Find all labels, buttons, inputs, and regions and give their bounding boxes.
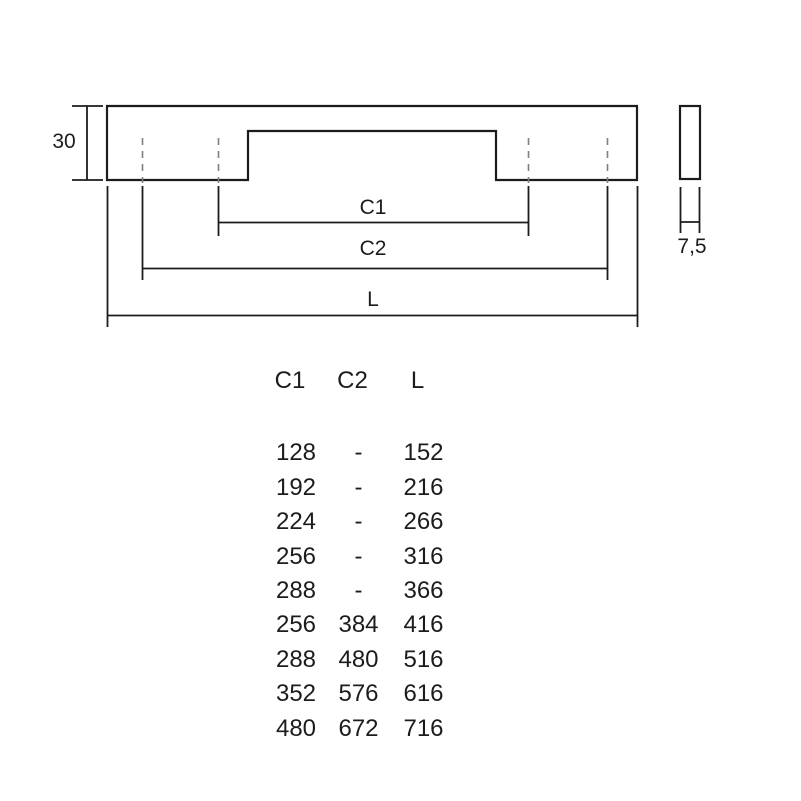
table-cell-c1: 192: [256, 471, 336, 505]
table-cell-c2: -: [336, 436, 381, 470]
table-cell-c2: -: [336, 574, 381, 608]
table-cell-c2: 384: [336, 608, 381, 642]
table-cell-l: 216: [381, 471, 466, 505]
table-cell-c1: 288: [256, 643, 336, 677]
table-cell-l: 716: [381, 712, 466, 746]
table-cell-l: 316: [381, 540, 466, 574]
thickness-dimension-label: 7,5: [677, 235, 706, 258]
table-cell-l: 366: [381, 574, 466, 608]
table-cell-l: 516: [381, 643, 466, 677]
table-cell-c1: 256: [256, 540, 336, 574]
table-header-l: L: [375, 364, 460, 398]
length-dimension: L: [107, 288, 637, 316]
table-cell-c2: -: [336, 471, 381, 505]
table-cell-l: 616: [381, 677, 466, 711]
table-row: 288 480 516: [256, 643, 466, 677]
table-cell-l: 152: [381, 436, 466, 470]
table-row: 128 - 152: [256, 436, 466, 470]
table-cell-c2: 672: [336, 712, 381, 746]
table-row: 480 672 716: [256, 712, 466, 746]
length-dimension-label: L: [367, 288, 379, 311]
table-row: 256 384 416: [256, 608, 466, 642]
handle-side-view: 7,5: [677, 106, 706, 258]
table-header-c1: C1: [250, 364, 330, 398]
handle-side-view-outline: [680, 106, 700, 179]
page: 30 C1 C2 L 7,5: [0, 0, 801, 801]
table-row: 256 - 316: [256, 540, 466, 574]
table-cell-l: 266: [381, 505, 466, 539]
table-cell-c2: -: [336, 540, 381, 574]
dimensions-table: C1 C2 L 128 - 152 192 - 216 224 - 266 25…: [256, 364, 466, 746]
table-cell-l: 416: [381, 608, 466, 642]
table-cell-c1: 288: [256, 574, 336, 608]
table-header-c2: C2: [330, 364, 375, 398]
handle-front-view-outline: [107, 106, 637, 180]
table-cell-c2: 576: [336, 677, 381, 711]
table-cell-c1: 224: [256, 505, 336, 539]
c2-dimension-label: C2: [360, 237, 387, 260]
table-cell-c1: 256: [256, 608, 336, 642]
table-row: 192 - 216: [256, 471, 466, 505]
table-cell-c1: 480: [256, 712, 336, 746]
height-dimension: 30: [52, 106, 103, 180]
height-dimension-label: 30: [52, 130, 75, 153]
c1-dimension: C1: [218, 196, 528, 223]
table-cell-c1: 352: [256, 677, 336, 711]
table-header-gap: [256, 398, 466, 436]
c1-dimension-label: C1: [360, 196, 387, 219]
table-header-row: C1 C2 L: [250, 364, 460, 398]
table-cell-c2: -: [336, 505, 381, 539]
c2-dimension: C2: [142, 237, 607, 269]
table-cell-c1: 128: [256, 436, 336, 470]
table-row: 224 - 266: [256, 505, 466, 539]
table-cell-c2: 480: [336, 643, 381, 677]
table-row: 288 - 366: [256, 574, 466, 608]
table-row: 352 576 616: [256, 677, 466, 711]
